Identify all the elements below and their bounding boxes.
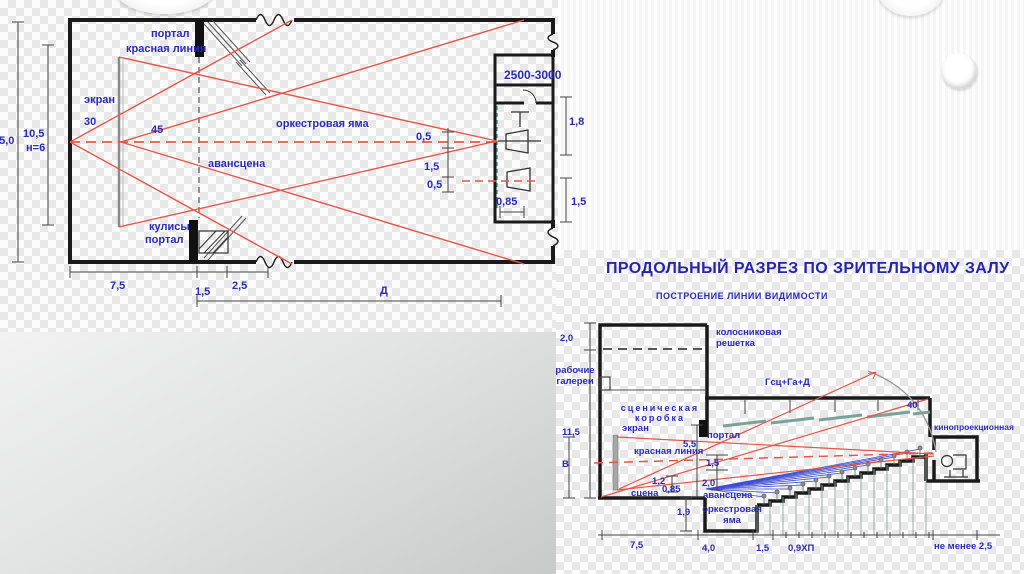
plan-portal-elements bbox=[189, 20, 270, 262]
plan-label-angle-30: 30 bbox=[84, 116, 96, 129]
section-walls bbox=[598, 325, 980, 531]
section-label-orchestra-pit: оркестровая яма bbox=[700, 505, 764, 527]
section-booth-projector bbox=[942, 455, 969, 477]
section-dim-1-9: 1,9 bbox=[677, 508, 690, 519]
section-dim-2-0-b: 2,0 bbox=[702, 479, 715, 490]
section-label-projection-room: кинопроекционная bbox=[934, 423, 1014, 433]
plan-dimension-lines bbox=[12, 22, 572, 307]
plan-label-wings: кулисы bbox=[149, 221, 190, 234]
section-dim-2-0: 2,0 bbox=[560, 334, 573, 345]
section-subtitle: ПОСТРОЕНИЕ ЛИНИИ ВИДИМОСТИ bbox=[656, 291, 828, 301]
plan-dim-0-5-lower: 0,5 bbox=[427, 179, 442, 192]
plan-label-red-line: красная линия bbox=[126, 43, 206, 56]
section-dim-1-5-b: 1,5 bbox=[756, 544, 769, 555]
plan-dim-1-5-bottom: 1,5 bbox=[195, 286, 210, 299]
section-dim-1-5: 1,5 bbox=[706, 459, 719, 470]
plan-label-orchestra-pit: оркестровая яма bbox=[276, 118, 369, 131]
section-label-red-line: красная линия bbox=[634, 447, 703, 458]
section-title: ПРОДОЛЬНЫЙ РАЗРЕЗ ПО ЗРИТЕЛЬНОМУ ЗАЛУ bbox=[606, 260, 1009, 278]
plan-dim-depth: Д bbox=[380, 285, 388, 298]
section-label-stage: сцена bbox=[631, 489, 658, 500]
plan-dim-h-6: н=6 bbox=[26, 142, 45, 155]
plan-dim-0-85: 0,85 bbox=[496, 196, 517, 209]
section-label-forestage: авансцена bbox=[703, 491, 752, 502]
plan-dim-15-0: 15,0 bbox=[0, 135, 14, 148]
plan-dim-1-5-right: 1,5 bbox=[571, 196, 586, 209]
plan-dim-10-5: 10,5 bbox=[23, 128, 44, 141]
plan-label-portal: портал bbox=[151, 28, 189, 41]
plan-label-screen: экран bbox=[84, 94, 115, 107]
plan-sight-lines-red bbox=[70, 20, 540, 264]
section-dim-7-5: 7,5 bbox=[630, 541, 643, 552]
booth-door-arc bbox=[523, 90, 536, 103]
section-dim-b: В bbox=[562, 460, 569, 471]
section-dim-11-5: 11,5 bbox=[562, 428, 580, 439]
section-ceiling-panels bbox=[723, 400, 930, 426]
plan-projector-symbols bbox=[498, 112, 541, 191]
section-dim-0-85: 0,85 bbox=[662, 485, 681, 496]
section-label-screen: экран bbox=[622, 424, 649, 435]
plan-dim-1-8: 1,8 bbox=[569, 116, 584, 129]
section-label-galleries: рабочие галереи bbox=[550, 366, 600, 388]
plan-dim-7-5: 7,5 bbox=[110, 280, 125, 293]
section-dim-row: 0,9ХП bbox=[788, 544, 814, 555]
plan-dim-1-5-mid: 1,5 bbox=[424, 161, 439, 174]
slide-canvas: { "title_block": { "title": "ПРОДОЛЬНЫЙ … bbox=[0, 0, 1024, 574]
plan-label-booth-width: 2500-3000 bbox=[504, 69, 561, 83]
section-label-angle-40: 40 bbox=[907, 401, 918, 412]
plan-label-wings-portal: портал bbox=[145, 234, 183, 247]
section-label-grid: колосниковая решетка bbox=[716, 328, 792, 350]
decorative-bubble-small bbox=[941, 53, 977, 89]
section-dim-min: не менее 2,5 bbox=[934, 542, 992, 553]
section-dim-4-0: 4,0 bbox=[702, 544, 715, 555]
plan-label-angle-45: 45 bbox=[151, 124, 163, 137]
section-label-portal: портал bbox=[707, 431, 740, 442]
section-label-stage-box: сценическая коробка bbox=[614, 403, 706, 424]
plan-label-forestage: авансцена bbox=[208, 158, 265, 171]
plan-dim-2-5: 2,5 bbox=[232, 280, 247, 293]
technical-drawing-lines bbox=[0, 0, 1024, 574]
section-label-ceiling-formula: Гсц+Га+Д bbox=[765, 378, 810, 389]
plan-dim-0-5-upper: 0,5 bbox=[416, 131, 431, 144]
